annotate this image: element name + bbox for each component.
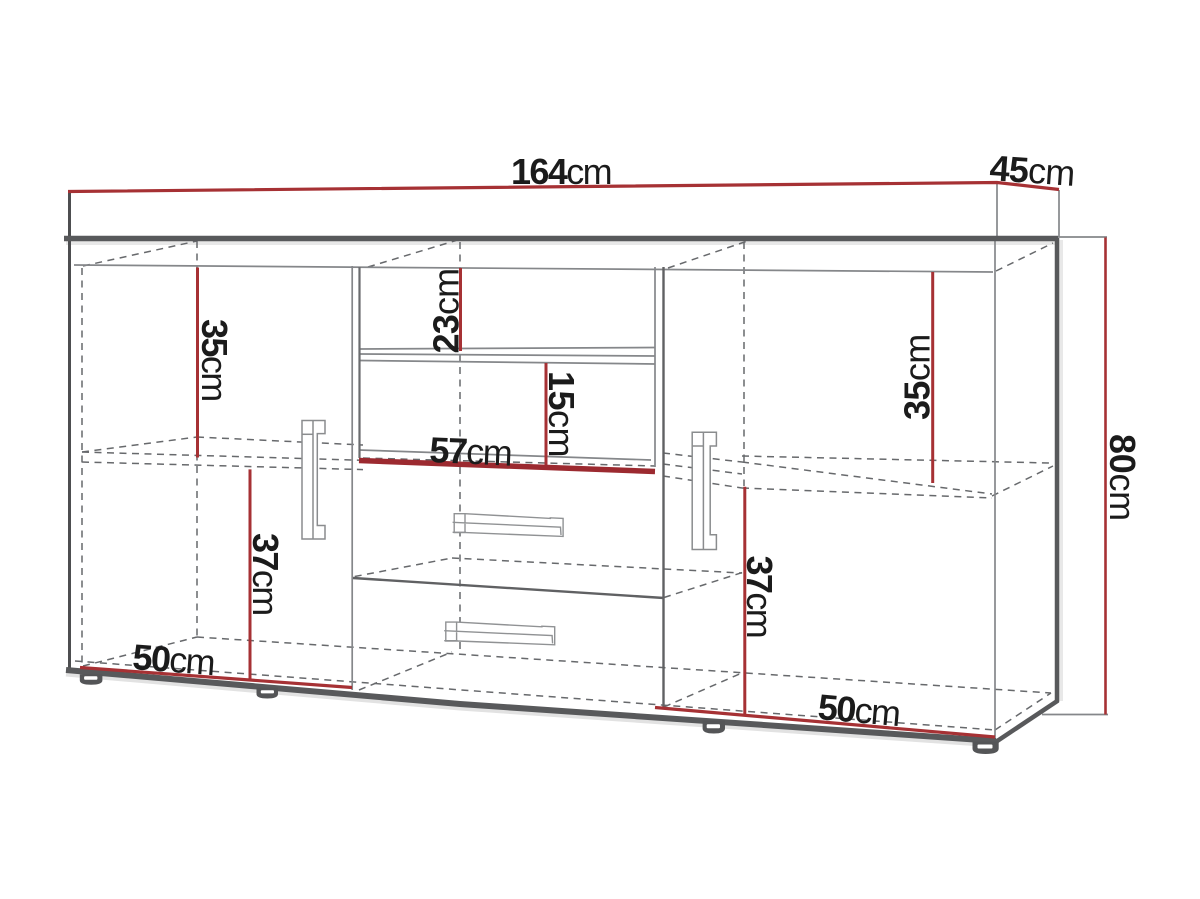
svg-text:23cm: 23cm: [426, 269, 467, 354]
svg-text:164cm: 164cm: [511, 151, 611, 192]
svg-text:57cm: 57cm: [429, 429, 512, 474]
svg-text:37cm: 37cm: [739, 556, 780, 638]
svg-text:45cm: 45cm: [988, 147, 1075, 194]
svg-text:35cm: 35cm: [897, 334, 938, 420]
svg-text:37cm: 37cm: [245, 533, 286, 615]
svg-text:50cm: 50cm: [131, 636, 215, 683]
svg-text:15cm: 15cm: [541, 371, 582, 457]
svg-text:50cm: 50cm: [816, 686, 901, 734]
svg-text:35cm: 35cm: [194, 319, 235, 401]
svg-text:80cm: 80cm: [1102, 434, 1143, 521]
